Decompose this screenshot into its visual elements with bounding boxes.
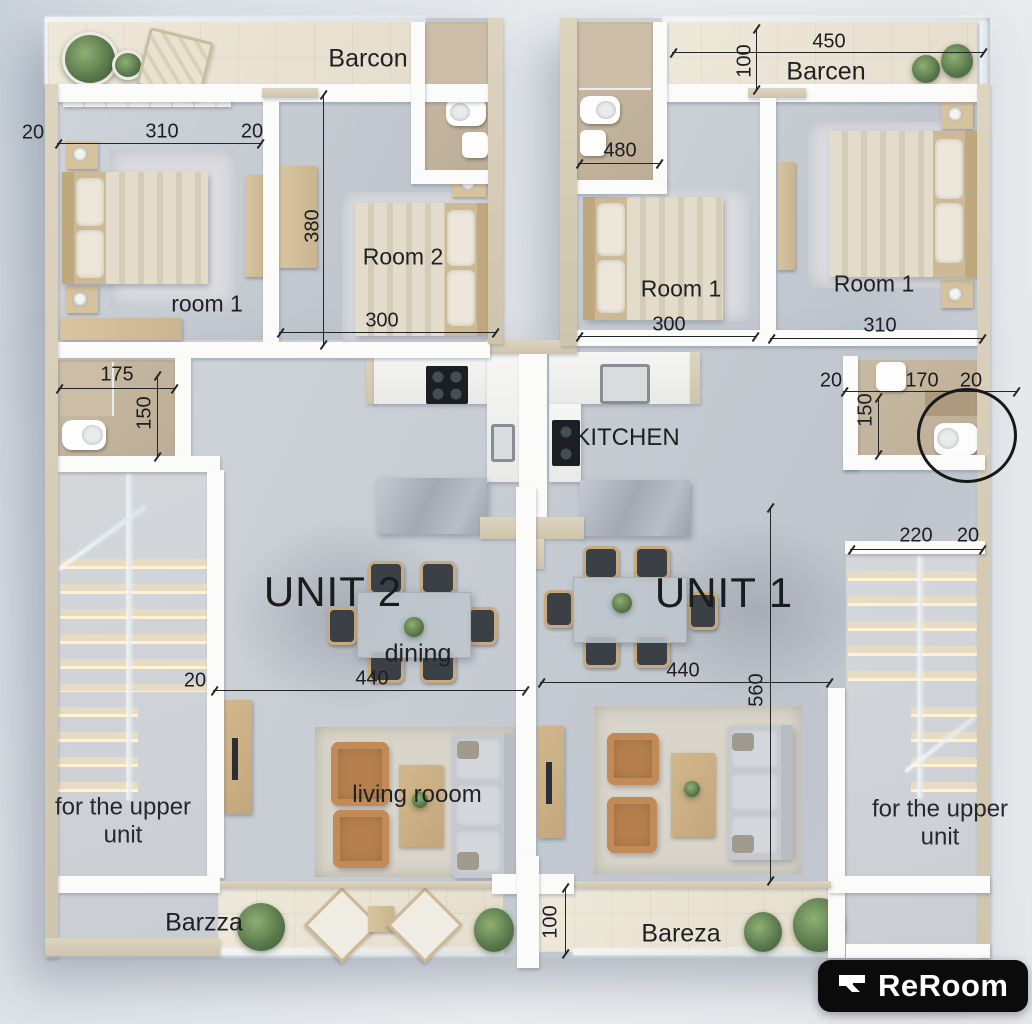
wardrobe [245,175,265,277]
dim-label: 150 [855,393,878,426]
dim-label: 440 [666,660,699,683]
dim-label: 220 [899,525,932,548]
toilet-icon [580,96,620,124]
dimension-line [850,549,984,550]
dim-label: 20 [184,670,206,693]
dim-label: 300 [365,310,398,333]
counter-cap [690,352,700,404]
stairs-note: for the upper unit [860,796,1020,853]
dim-label: 310 [145,121,178,144]
stair-railing [127,474,131,800]
wall-segment [516,487,536,877]
dimension-line [58,388,176,389]
wall-segment [653,22,667,182]
tv-console [224,700,252,814]
floor-plan: 20 310 20 380 300 450 100 480 300 310 17… [0,0,1032,1024]
dim-label: 300 [652,314,685,337]
reroom-logo: ReRoom [818,960,1028,1012]
shower [579,24,651,90]
room-label-bedroom: Room 1 [641,276,722,303]
dim-label: 170 [905,370,938,393]
plant-icon [62,32,118,86]
dim-label: 380 [302,209,325,242]
sofa [727,725,793,860]
room-label-balcony: Barcon [328,45,407,74]
armchair [333,810,389,868]
plant-icon [684,781,700,797]
sliding-door [220,881,498,888]
plant-icon [237,903,285,951]
reroom-logo-text: ReRoom [878,968,1008,1004]
armchair [607,797,657,853]
door [262,88,318,98]
dim-label: 20 [957,525,979,548]
wall-segment [517,856,539,968]
outer-wall [560,18,577,346]
toilet-icon [62,420,106,450]
room-label-living: living rooom [352,781,481,809]
toilet-icon [446,98,486,126]
wall-segment [175,358,191,458]
wall-segment [760,98,776,332]
plant-icon [941,44,973,78]
dim-label: 20 [241,121,263,144]
dim-label: 150 [134,396,157,429]
room-label-kitchen: KITCHEN [574,424,679,452]
wall-segment [58,876,220,893]
room-label-bedroom: Room 1 [834,271,915,298]
dim-label: 20 [820,370,842,393]
unit-label: UNIT 1 [655,569,793,617]
nightstand [66,285,98,313]
wall-segment [663,84,985,102]
dimension-line [770,338,984,339]
bed [62,172,208,284]
dimension-line [578,163,661,164]
plant-icon [474,908,514,952]
room-label-balcony: Barzza [165,909,243,938]
wall-segment [577,180,667,194]
plant-icon [404,617,424,637]
room-label-balcony: Barcen [786,58,865,87]
dim-label: 450 [812,31,845,54]
sink-icon [600,364,650,404]
kitchen-counter [487,352,519,482]
dim-label: 100 [734,44,757,77]
sliding-door [573,881,831,888]
dimension-line [565,888,566,954]
dining-chair [583,546,619,580]
plant-icon [912,55,940,83]
wall-segment [58,456,220,472]
outer-wall [488,18,503,344]
dim-label: 100 [540,905,563,938]
stove-icon [426,366,468,404]
wall-segment [846,944,990,958]
bed [829,131,977,277]
sink-icon [876,362,906,391]
wall-segment [207,470,224,878]
plant-icon [612,593,632,613]
stairs-left-lower [58,692,138,798]
dim-label: 310 [863,315,896,338]
sink-icon [491,424,515,462]
room-label-bedroom: Room 2 [363,244,444,271]
unit-label: UNIT 2 [264,568,402,616]
wall-segment [828,688,845,958]
dim-label: 560 [746,673,769,706]
kitchen-island [377,478,487,534]
room-label-balcony: Bareza [641,920,720,949]
dim-label: 480 [603,140,636,163]
stairs-note: for the upper unit [43,794,203,851]
dim-label: 440 [355,668,388,691]
balcony-balustrade [573,949,833,955]
sink-icon [580,130,606,156]
wall-segment [263,102,279,344]
nightstand [941,280,973,308]
dimension-line [157,376,158,457]
nightstand [66,141,98,169]
plant-icon [744,912,782,952]
dining-chair [544,590,574,628]
dim-label: 175 [100,364,133,387]
room-label-dining: dining [385,640,452,669]
tv-console [538,726,564,838]
wall-segment [411,22,425,174]
kitchen-island [580,480,690,536]
wall-segment [411,170,490,184]
reroom-logo-icon [836,970,868,1002]
dining-chair [467,607,497,645]
armchair [607,733,659,785]
dresser [60,318,182,340]
wall-segment [58,342,490,358]
wardrobe [777,162,795,270]
dining-chair [420,561,456,595]
wall-segment [828,876,990,893]
shower [425,24,486,92]
outer-wall [45,938,220,956]
sink-icon [462,132,488,158]
room-label-bedroom: room 1 [171,291,243,318]
dimension-line [878,398,879,455]
stairs-right [848,556,977,692]
nightstand [941,101,973,129]
dimension-line [770,508,771,881]
dim-label: 20 [22,122,44,145]
annotation-circle [917,388,1017,483]
